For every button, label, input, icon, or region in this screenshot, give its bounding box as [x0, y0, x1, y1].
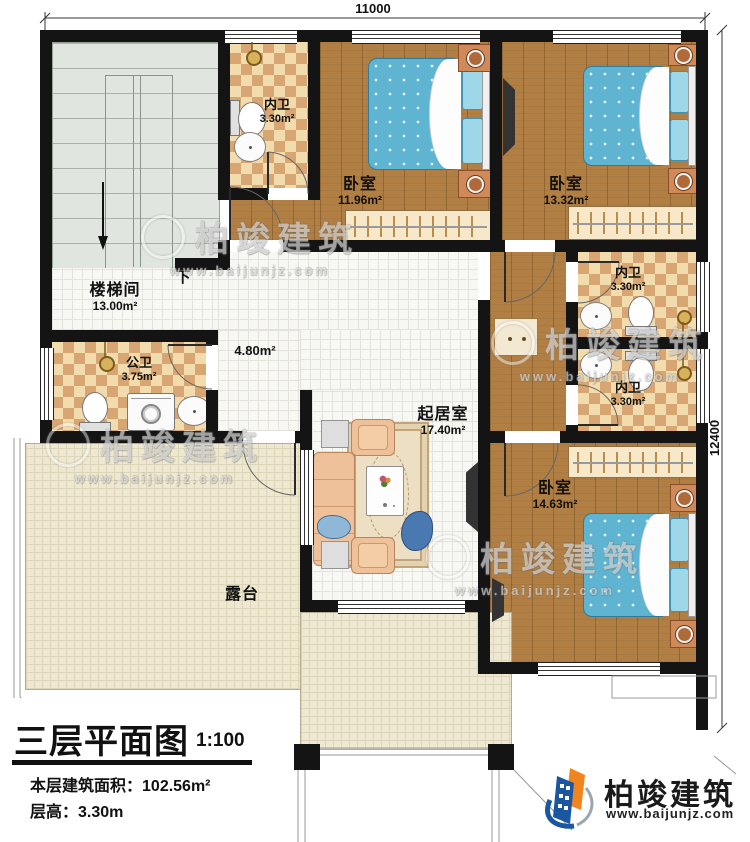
bed-pillow — [670, 568, 689, 612]
bed-pillow — [670, 518, 689, 562]
room-label-bath-mid2: 内卫 3.30m² — [588, 381, 668, 408]
window — [696, 262, 710, 332]
floor-area-line: 本层建筑面积：102.56m² — [30, 772, 211, 796]
dim-tick — [700, 13, 710, 23]
wall-segment — [566, 337, 696, 349]
bed-mattress — [368, 58, 461, 170]
room-label-bedroom3: 卧室 14.63m² — [505, 480, 605, 511]
wardrobe-symbol — [345, 210, 492, 242]
lamp-icon — [676, 490, 693, 507]
sink-symbol — [580, 302, 612, 330]
wall-segment — [465, 600, 490, 612]
title-underline — [12, 760, 252, 765]
wall-segment — [218, 42, 230, 200]
room-label-bedroom1: 卧室 11.96m² — [310, 176, 410, 207]
bed-pillow — [670, 71, 689, 113]
wall-segment — [478, 300, 490, 674]
balcony-post-left — [294, 744, 320, 770]
window — [300, 450, 314, 545]
side-table-symbol — [321, 420, 349, 448]
nightstand-symbol — [458, 170, 492, 198]
nightstand-symbol — [668, 44, 698, 66]
bed-symbol — [583, 66, 696, 166]
bed-sheet — [639, 67, 669, 165]
shower-knob-icon — [246, 50, 262, 66]
lamp-icon — [467, 50, 484, 67]
wall-segment — [566, 252, 578, 262]
bed-symbol — [583, 513, 696, 617]
lamp-icon — [676, 626, 693, 643]
room-label-staircase: 楼梯间 13.00m² — [60, 282, 170, 313]
cabinet-symbol — [494, 318, 538, 356]
window — [40, 348, 54, 420]
sink-symbol — [234, 132, 266, 162]
room-label-bath-top: 内卫 3.30m² — [243, 98, 311, 125]
lamp-icon — [675, 47, 692, 64]
towel-ring-icon — [677, 310, 692, 325]
lamp-icon — [467, 176, 484, 193]
armchair-symbol — [351, 419, 395, 456]
bed-headboard — [482, 58, 490, 170]
brand-logo-icon — [540, 764, 598, 830]
window — [696, 349, 710, 423]
tv-symbol — [492, 578, 504, 622]
wall-segment — [555, 240, 708, 252]
wall-segment — [478, 662, 538, 674]
floor-terrace — [25, 443, 302, 690]
wall-segment — [295, 431, 312, 443]
nightstand-symbol — [668, 168, 698, 194]
nightstand-symbol — [670, 620, 698, 648]
wardrobe-symbol — [568, 446, 698, 478]
tv-symbol — [503, 78, 515, 156]
plan-title: 三层平面图 — [14, 714, 189, 763]
sink-symbol — [580, 351, 612, 379]
flower-icon — [378, 474, 392, 488]
room-label-terrace: 露台 — [212, 586, 272, 604]
wardrobe-symbol — [568, 206, 698, 240]
dim-tick — [717, 25, 727, 35]
bed-pillow — [462, 118, 482, 165]
toilet-tank — [625, 326, 657, 336]
stair-center-rail — [133, 75, 141, 267]
bed-pillow — [670, 119, 689, 161]
floor-hall-mid — [300, 330, 478, 390]
dim-tick — [717, 723, 727, 733]
wall-segment — [283, 240, 505, 252]
bed-symbol — [368, 58, 490, 170]
hallway-area-label: 4.80m² — [222, 344, 288, 359]
nightstand-symbol — [670, 484, 698, 512]
wall-segment — [660, 662, 708, 674]
window — [352, 30, 480, 44]
wall-segment — [40, 330, 218, 342]
wall-segment — [218, 188, 268, 200]
dimension-right: 12400 — [707, 413, 723, 463]
side-table-symbol — [321, 541, 349, 569]
balcony-post-right — [488, 744, 514, 770]
floor-hall-upper — [218, 252, 478, 330]
towel-ring-icon — [677, 366, 692, 381]
brand-logo: 柏竣建筑 www.baijunjz.com — [540, 762, 750, 834]
wall-segment — [300, 545, 312, 612]
wall-segment — [490, 42, 502, 252]
coffee-table-symbol — [366, 466, 404, 516]
toilet-symbol — [628, 296, 654, 330]
brand-url: www.baijunjz.com — [606, 806, 734, 821]
window — [338, 600, 465, 614]
plan-scale: 1:100 — [196, 730, 245, 752]
floor-bedroom1-entry — [230, 200, 320, 240]
washing-machine-symbol — [127, 393, 175, 431]
lamp-icon — [675, 173, 692, 190]
room-label-living: 起居室 17.40m² — [398, 406, 488, 437]
wall-segment — [560, 431, 708, 443]
floor-height-line: 层高：3.30m — [30, 798, 123, 822]
floor-plan: 11000 12400 楼梯间 13.00m² 下 内卫 3.30m² 卧室 1… — [0, 0, 750, 842]
bed-headboard — [688, 66, 696, 166]
wall-segment — [218, 431, 243, 443]
window — [225, 30, 297, 44]
bed-headboard — [688, 513, 696, 617]
room-label-bedroom2: 卧室 13.32m² — [516, 176, 616, 207]
dim-tick — [40, 13, 50, 23]
wall-segment — [206, 390, 218, 431]
stair-down-label: 下 — [172, 270, 194, 287]
title-block: 三层平面图 1:100 本层建筑面积：102.56m² 层高：3.30m — [0, 698, 262, 842]
bed-sheet — [429, 59, 461, 169]
window — [553, 30, 681, 44]
bed-sheet — [639, 514, 669, 616]
toilet-symbol — [82, 392, 108, 424]
room-label-bath-mid1: 内卫 3.30m² — [588, 266, 668, 293]
dimension-top: 11000 — [318, 1, 428, 16]
tv-symbol — [466, 462, 478, 532]
wall-segment — [40, 431, 218, 443]
nightstand-symbol — [458, 44, 492, 72]
bed-mattress — [583, 66, 669, 166]
wall-segment — [206, 342, 218, 345]
bed-mattress — [583, 513, 669, 617]
person-figure — [317, 515, 351, 539]
window — [538, 662, 660, 676]
armchair-symbol — [351, 537, 395, 574]
room-label-public-bath: 公卫 3.75m² — [104, 356, 174, 383]
